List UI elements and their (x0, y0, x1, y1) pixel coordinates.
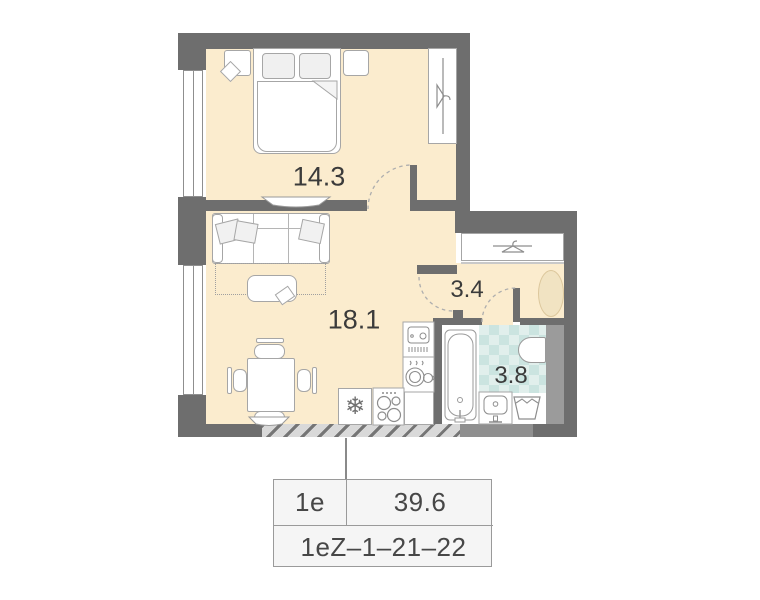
bed-blanket-fold (313, 81, 337, 99)
area-label-living: 18.1 (328, 305, 381, 336)
area-label-bedroom: 14.3 (293, 162, 346, 193)
unit-code: 1eZ–1–21–22 (274, 526, 493, 568)
bathtub (445, 330, 476, 422)
closet-hanger-icon (493, 241, 532, 252)
door-arc-hallway (419, 277, 453, 311)
tv-bedroom (262, 197, 330, 207)
door-arc-bedroom (368, 165, 412, 209)
area-label-bathroom: 3.8 (494, 362, 527, 390)
area-label-hallway: 3.4 (450, 276, 483, 304)
stove (373, 388, 404, 425)
laundry-basket (514, 397, 540, 419)
callout-line (345, 438, 347, 479)
washer-unit (403, 322, 434, 357)
bathroom-sink (479, 392, 512, 424)
unit-info-card: 1e 39.6 1eZ–1–21–22 (273, 479, 492, 567)
door-arc-bathroom (482, 288, 516, 322)
tv-living (249, 417, 289, 426)
kitchen-sink-unit (403, 357, 434, 392)
unit-type: 1e (274, 480, 346, 525)
unit-total-area: 39.6 (347, 480, 493, 525)
floor-plan-canvas: ❄ (0, 0, 760, 600)
wardrobe-hanger-icon (437, 58, 450, 134)
